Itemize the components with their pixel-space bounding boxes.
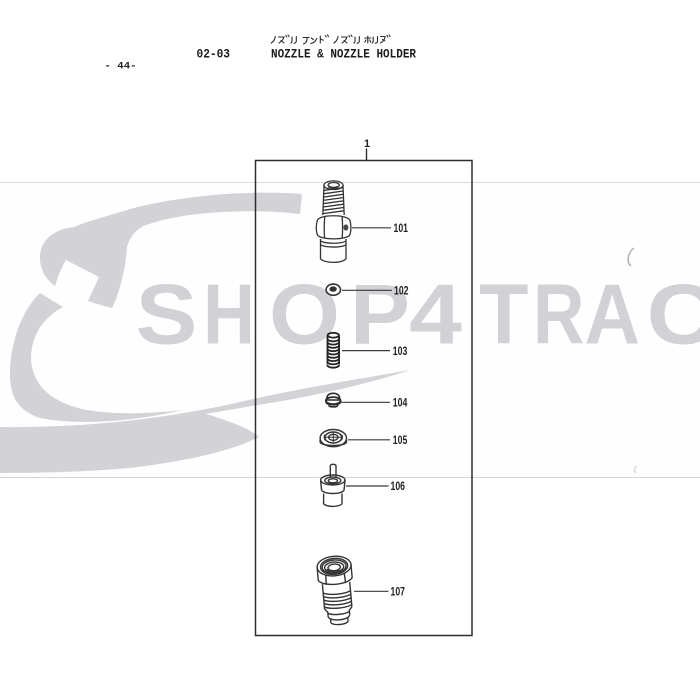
svg-text:105: 105 — [393, 433, 408, 447]
svg-text:104: 104 — [393, 395, 408, 409]
svg-text:107: 107 — [391, 585, 406, 599]
svg-text:NOZZLE & NOZZLE HOLDER: NOZZLE & NOZZLE HOLDER — [271, 47, 416, 62]
svg-text:103: 103 — [393, 344, 408, 358]
svg-text:106: 106 — [391, 479, 406, 493]
svg-text:1: 1 — [364, 138, 370, 150]
svg-text:101: 101 — [394, 221, 409, 235]
svg-text:- 44-: - 44- — [105, 60, 137, 72]
svg-text:02-03: 02-03 — [197, 47, 231, 62]
svg-text:102: 102 — [394, 284, 409, 298]
